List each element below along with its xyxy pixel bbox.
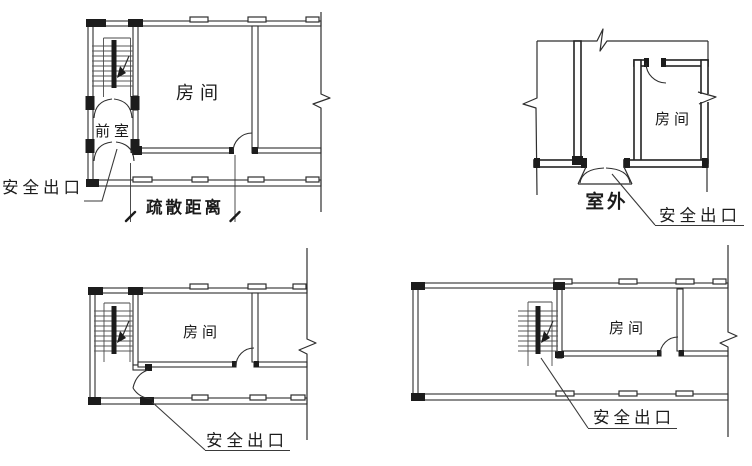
floor-plan-figure: 房间 前室 安全出口 疏散距离 (0, 0, 752, 466)
stair-direction-arrow (541, 321, 553, 343)
stairs-icon (92, 38, 133, 97)
walls (411, 279, 728, 401)
stair-direction-arrow (117, 321, 129, 343)
plan-bottom-left-enclosed-stair: 房间 安全出口 (88, 248, 316, 451)
exit-callout: 安全出口 (2, 149, 117, 201)
door-swing-icons (660, 337, 678, 355)
exit-callout: 安全出口 (612, 174, 744, 226)
exit-label: 安全出口 (2, 178, 84, 197)
exit-callout: 安全出口 (152, 402, 290, 451)
exit-label: 安全出口 (593, 408, 675, 427)
break-line-icon (720, 245, 737, 437)
plan-top-right-exit-to-outdoor: 房间 室外 安全出口 (523, 29, 744, 226)
break-line-icon (299, 248, 316, 440)
plan-bottom-right-open-stair: 房间 安全出口 (411, 245, 737, 437)
stair-direction-arrow (117, 56, 129, 78)
walls (88, 284, 307, 405)
plans-canvas: 房间 前室 安全出口 疏散距离 (0, 0, 752, 466)
room-label: 房间 (176, 83, 224, 104)
room-label: 房间 (609, 319, 647, 337)
dimension-indicator: 疏散距离 (126, 155, 240, 222)
stairs-icon (518, 302, 558, 366)
dimension-label: 疏散距离 (146, 197, 224, 217)
stairs-icon (94, 303, 133, 362)
outdoor-exit-door (578, 167, 632, 184)
exit-label: 安全出口 (206, 431, 288, 450)
outdoor-label: 室外 (585, 191, 628, 213)
anteroom-label: 前室 (95, 122, 133, 140)
door-swing-icons (133, 348, 254, 399)
exit-label: 安全出口 (659, 206, 741, 225)
plan-top-left-enclosed-stair-anteroom: 房间 前室 安全出口 疏散距离 (2, 12, 330, 222)
room-label: 房间 (655, 110, 693, 128)
room-label: 房间 (183, 323, 221, 341)
